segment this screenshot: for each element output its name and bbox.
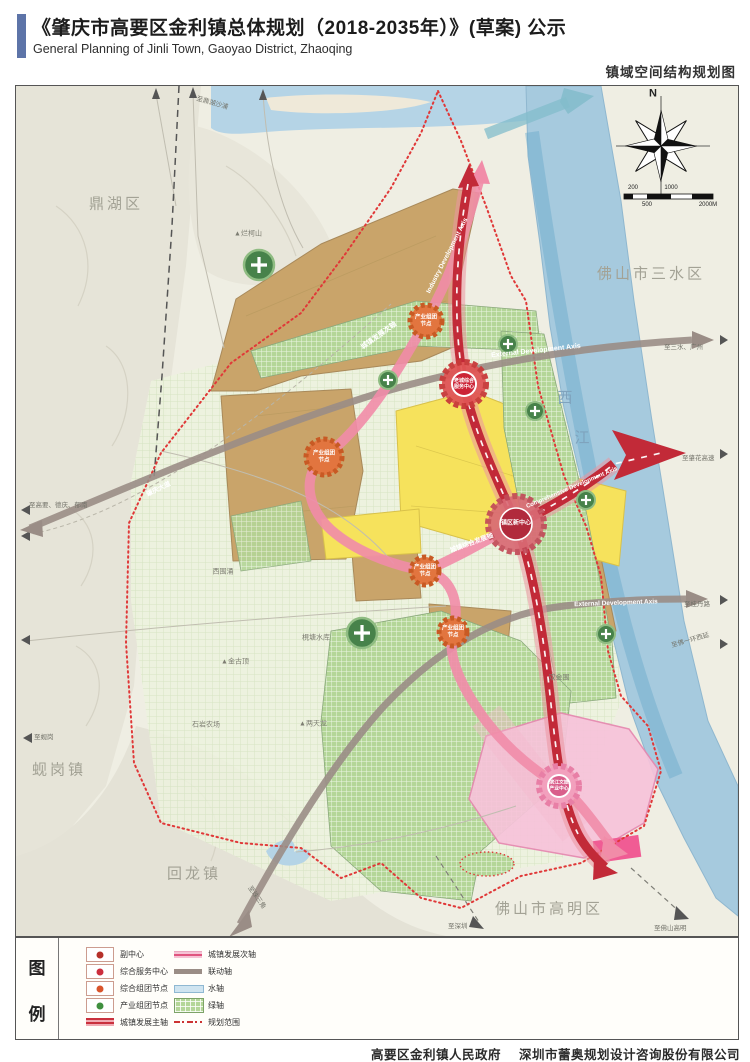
place-label-shuangjinwei: 双金围: [549, 675, 570, 682]
place-label-shiyan: 石岩农场: [192, 722, 220, 729]
legend-title: 图 例: [16, 938, 59, 1039]
node-label-old-town: 老城综合服务中心: [454, 378, 474, 390]
region-label-dinghu: 鼎湖区: [89, 197, 143, 212]
legend-swatch-main-axis: [86, 1018, 114, 1026]
title-accent-bar: [17, 14, 26, 58]
map-canvas: 鼎湖区 佛山市三水区 佛山市高明区 回龙镇 蚬岗镇 西 江 ▲烂柯山 ▲金古顶 …: [15, 85, 739, 937]
scale-tick-2000: 2000M: [699, 202, 717, 208]
scale-tick-500: 500: [642, 202, 652, 208]
direction-label-xiangang: 至蚬岗: [34, 735, 54, 742]
legend-swatch-comprehensive-node: [86, 981, 114, 996]
legend-swatch-linkage-axis: [174, 969, 202, 974]
river-label-jiang: 江: [574, 431, 589, 446]
scale-tick-200: 200: [628, 185, 638, 191]
node-label-industry-2: 产业组团节点: [313, 450, 335, 463]
direction-label-gaoyao: 至高要、德庆、郁南: [29, 503, 88, 510]
page-subtitle: General Planning of Jinli Town, Gaoyao D…: [33, 42, 352, 56]
river-label-xi: 西: [557, 391, 572, 406]
direction-label-gaoming: 至佛山高明: [654, 926, 687, 933]
legend-swatch-service-center: [86, 964, 114, 979]
page-title: 《肇庆市高要区金利镇总体规划（2018-2035年）》(草案) 公示: [32, 13, 566, 40]
footer-government: 高要区金利镇人民政府: [371, 1048, 501, 1062]
footer-company: 深圳市蕾奥规划设计咨询股份有限公司: [519, 1048, 740, 1062]
place-label-lankeshan: ▲烂柯山: [234, 231, 262, 238]
compass-north-label: N: [649, 89, 657, 100]
node-label-industry-3: 产业组团节点: [414, 564, 436, 577]
map-geometry: [16, 86, 738, 936]
node-label-industry-1: 产业组团节点: [415, 314, 437, 327]
node-label-waterfront: 滨江文旅产业中心: [549, 780, 568, 792]
map-sheet-name: 镇域空间结构规划图: [606, 61, 737, 81]
legend-swatch-planning-boundary: [174, 1021, 202, 1023]
region-label-xiangang: 蚬岗镇: [32, 763, 86, 778]
legend-swatch-industry-node: [86, 998, 114, 1013]
direction-label-guidan: 至桂丹路: [684, 602, 710, 609]
legend-swatch-secondary-axis: [174, 951, 202, 958]
region-label-gaoming: 佛山市高明区: [495, 902, 603, 917]
legend: 图 例 副中心 综合服务中心 综合组团节点 产业组团节点 城镇发展主轴 城镇发展…: [15, 937, 739, 1040]
direction-label-zhaohua: 至肇花高速: [682, 456, 715, 463]
direction-label-shenzhen: 至深圳: [448, 924, 468, 931]
direction-label-sanshui-gz: 至三水、广州: [664, 345, 703, 352]
footer-credits: 高要区金利镇人民政府深圳市蕾奥规划设计咨询股份有限公司: [371, 1044, 740, 1062]
node-label-industry-4: 产业组团节点: [442, 625, 464, 638]
place-label-jiantang: 梘塘水库: [302, 635, 330, 642]
place-label-xiweichong: 西围涌: [213, 569, 234, 576]
node-label-new-center: 镇区新中心: [501, 520, 531, 527]
scale-tick-1000: 1000: [664, 185, 677, 191]
scale-bar: [624, 194, 713, 199]
legend-swatch-water-axis: [174, 985, 204, 993]
place-label-liangtianlong: ▲两天龙: [299, 721, 327, 728]
place-label-jinguding: ▲金古顶: [221, 659, 249, 666]
legend-swatch-sub-center: [86, 947, 114, 962]
region-label-sanshui: 佛山市三水区: [597, 267, 705, 282]
legend-swatch-green-axis: [174, 998, 204, 1013]
planning-poster: 《肇庆市高要区金利镇总体规划（2018-2035年）》(草案) 公示 Gener…: [0, 0, 750, 1062]
region-label-huilong: 回龙镇: [167, 867, 221, 882]
